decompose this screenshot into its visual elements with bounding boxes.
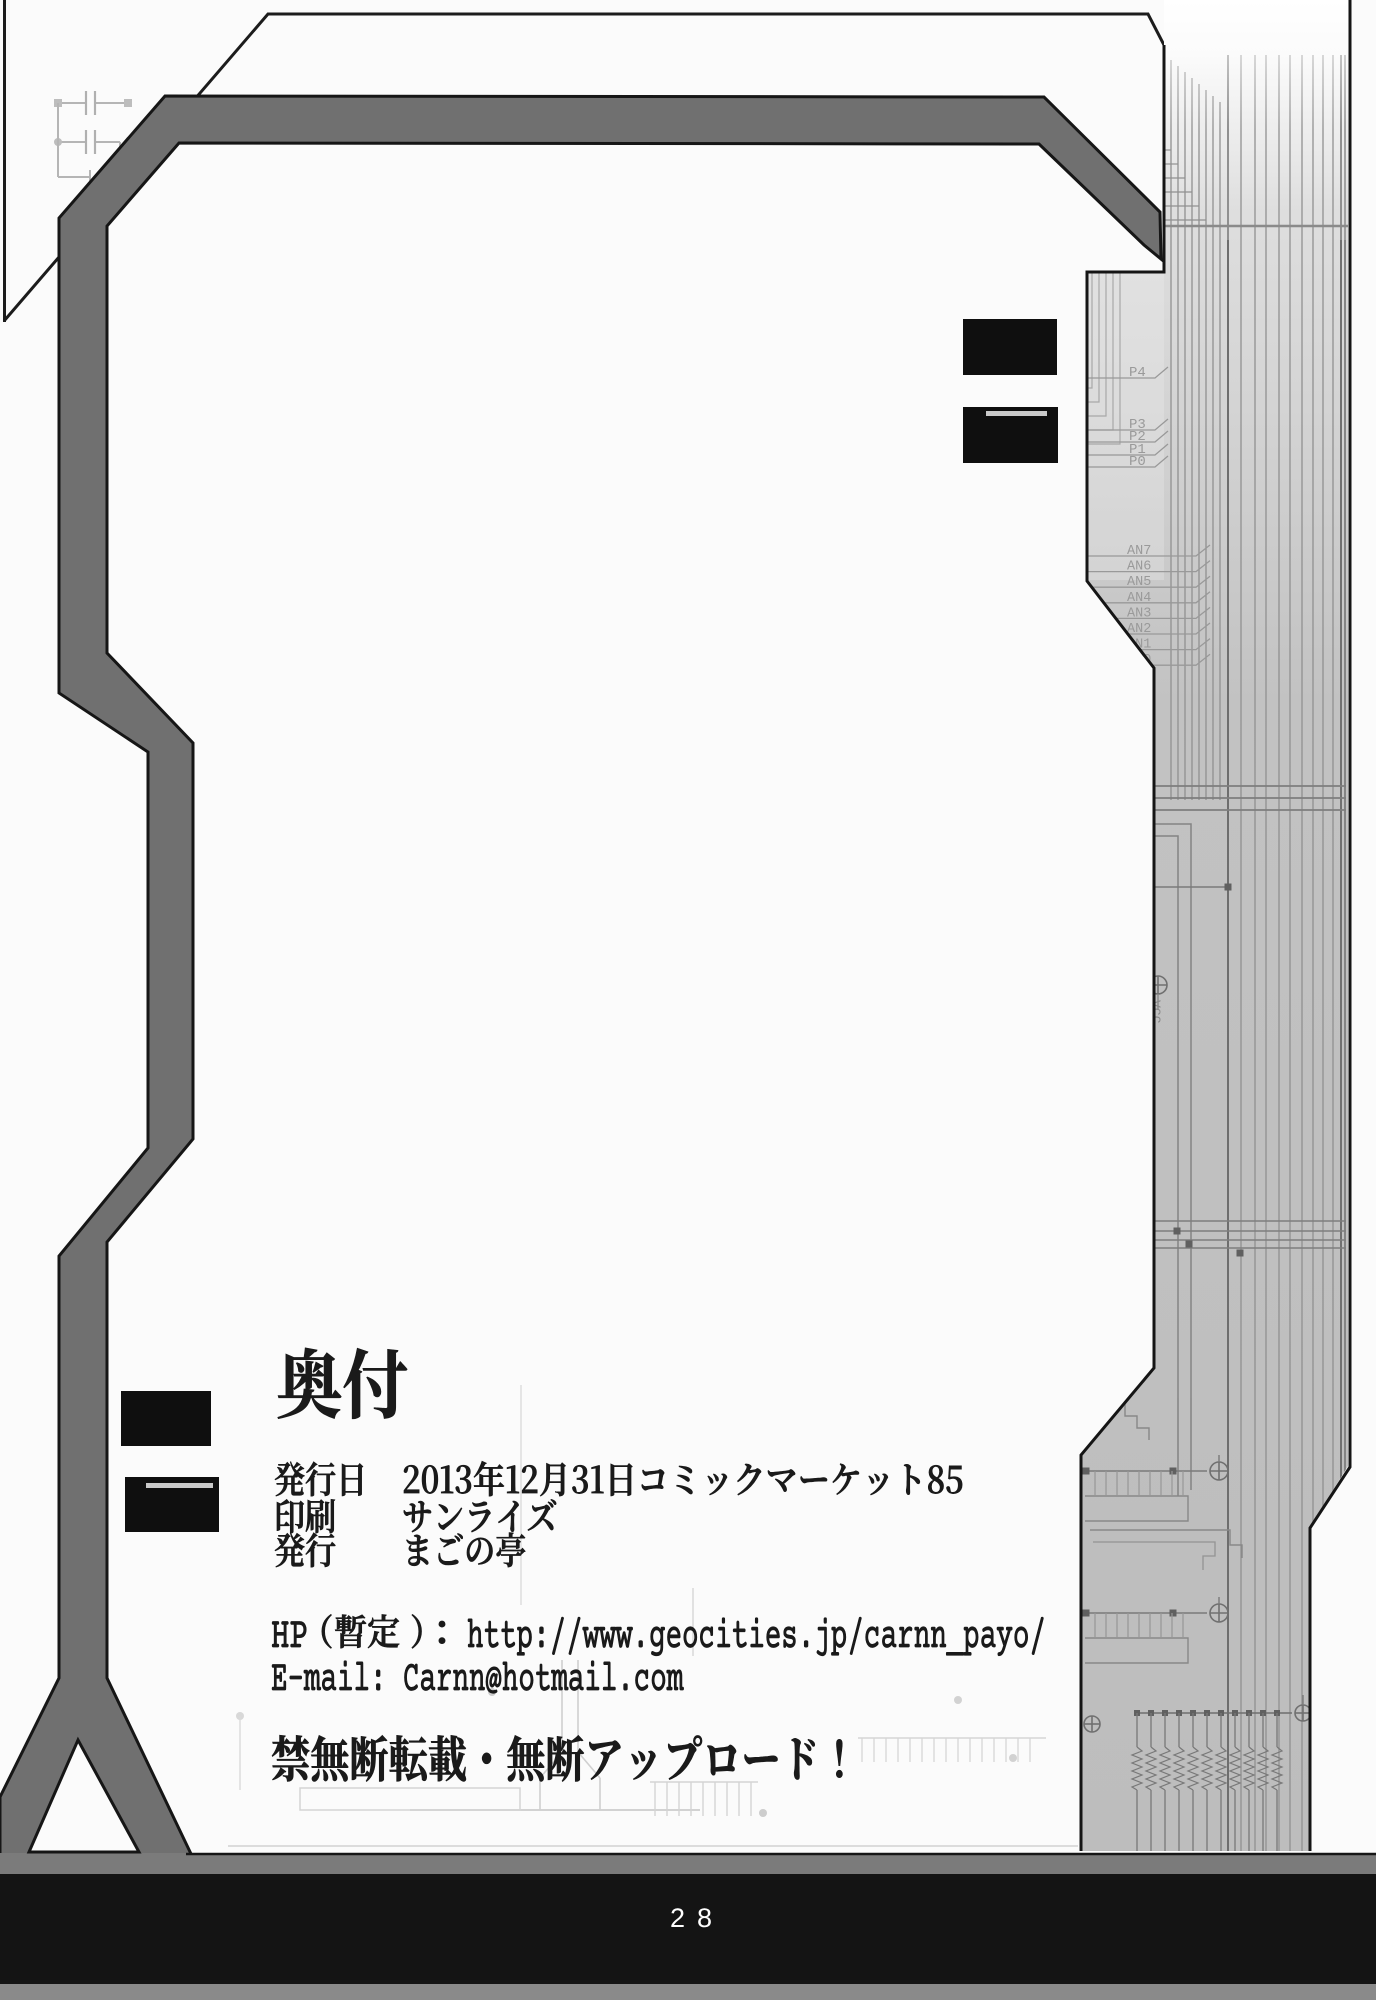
svg-text:P4: P4 bbox=[1129, 365, 1146, 381]
svg-text:AN5: AN5 bbox=[1127, 575, 1151, 590]
svg-text:AN4: AN4 bbox=[1127, 591, 1151, 606]
svg-text:AN6: AN6 bbox=[1127, 560, 1151, 575]
svg-text:AN7: AN7 bbox=[1127, 544, 1151, 559]
svg-text:P0: P0 bbox=[1129, 454, 1146, 470]
svg-text:AN3: AN3 bbox=[1127, 606, 1151, 621]
svg-text:AN2: AN2 bbox=[1127, 622, 1151, 637]
svg-text:28: 28 bbox=[670, 1903, 724, 1933]
